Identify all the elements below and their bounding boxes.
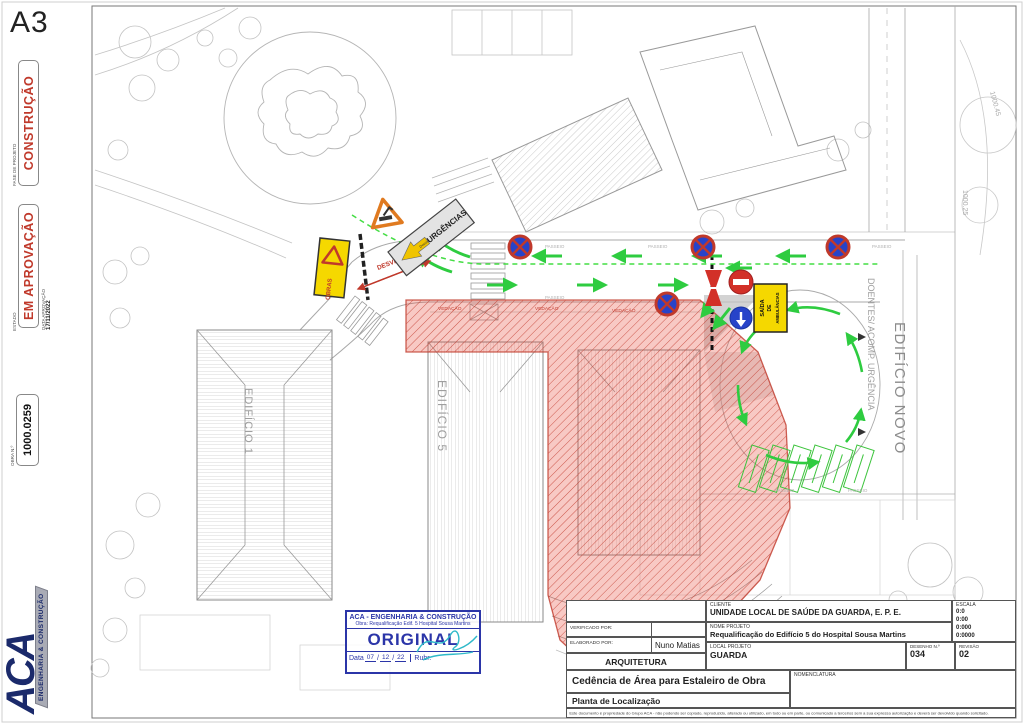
approval-date-block: DATA APROVAÇÃO 17/11/2022: [41, 260, 55, 330]
stamp-year: 22: [395, 654, 406, 662]
route-arrow-icon: [858, 428, 866, 436]
status-value-badge: EM APROVAÇÃO: [18, 204, 39, 328]
tb-verificado: VERIFICADO POR:: [566, 622, 706, 637]
escala-2: 0:00: [956, 616, 1015, 624]
contour-b-label: 1000.25: [961, 190, 968, 215]
local-label: LOCAL PROJETO: [707, 643, 905, 650]
passeio-label: PASSEIO: [545, 295, 565, 300]
passeio-label: PASSEIO: [848, 488, 868, 493]
stamp-date-row: Data 07 / 12 / 22 Rubr.: [347, 652, 479, 664]
stamp-sep2: /: [392, 655, 394, 662]
cliente-label: CLIENTE: [707, 601, 951, 608]
work-number-label: OBRA N.º: [10, 446, 15, 466]
edificio1-label: EDIFÍCIO 1: [242, 388, 255, 455]
drawing-sheet: DESVIO Desvio URGÊNCIAS OBRAS SAÍDA DE A…: [0, 0, 1024, 724]
revisao-value: 02: [956, 649, 1015, 659]
amb-line2: DE: [767, 304, 773, 312]
tb-empty-cell: [566, 600, 706, 622]
stamp-divider: [410, 654, 411, 662]
nomenclatura-label: NOMENCLATURA: [791, 671, 1015, 678]
tb-assunto: Cedência de Área para Estaleiro de Obra: [566, 670, 790, 693]
stamp-rubr-label: Rubr.: [414, 655, 431, 662]
stamp-obra: Obra: Requalificação Edif. 5 Hospital So…: [347, 621, 479, 629]
tb-escala: ESCALA 0:0 0:00 0:000 0:0000: [952, 600, 1016, 642]
vedacao-label: VEDAÇÃO: [535, 305, 559, 312]
stamp-company: ACA - ENGENHARIA & CONSTRUÇÃO: [347, 612, 479, 621]
sheet-format: A3: [10, 6, 49, 40]
tb-disciplina: ARQUITETURA: [566, 653, 706, 670]
amb-line3: AMBULÂNCIAS: [775, 292, 780, 323]
vedacao-label: VEDAÇÃO: [612, 307, 636, 314]
garden-maze: [224, 32, 396, 204]
fence-bar-left: [360, 234, 368, 300]
road-vertical: [869, 8, 905, 232]
status-label: ESTADO: [12, 312, 17, 331]
edificio5-label: EDIFÍCIO 5: [435, 380, 450, 452]
amb-line1: SAÍDA: [758, 299, 766, 316]
aca-logo-band: ENGENHARIA & CONSTRUÇÃO: [35, 586, 48, 709]
tb-local: LOCAL PROJETO GUARDA: [706, 642, 906, 670]
passeio-label: PASSEIO: [775, 488, 795, 493]
route-label: DOENTES/ ACOMP. URGÊNCIA: [866, 278, 876, 410]
mandatory-direction-sign: [730, 307, 752, 329]
ambulance-exit-sign: SAÍDA DE AMBULÂNCIAS: [754, 284, 787, 332]
verificado-label: VERIFICADO POR:: [567, 623, 705, 631]
elaborado-value: Nuno Matias: [655, 641, 700, 650]
no-entry-sign: [729, 270, 753, 294]
contour-a-label: 1000.45: [988, 91, 1001, 117]
stamp-data-label: Data: [349, 655, 364, 662]
passeio-label: PASSEIO: [648, 244, 668, 249]
tb-elaborado: ELABORADO POR: Nuno Matias: [566, 637, 706, 653]
stamp-day: 07: [365, 654, 376, 662]
desenho-value: 034: [907, 649, 954, 659]
route-arrow-icon: [858, 333, 866, 341]
disclaimer-text: Este documento é propriedade do Grupo AC…: [567, 711, 989, 715]
edificio-novo-label: EDIFÍCIO NOVO: [891, 322, 908, 455]
tb-nome-projeto: NOME PROJETO Requalificação do Edifício …: [706, 622, 952, 642]
contours: [960, 40, 1016, 255]
stamp-sep1: /: [377, 655, 379, 662]
phase-label: FASE DE PROJETO: [12, 144, 17, 186]
aca-logo: ACA ENGENHARIA & CONSTRUÇÃO: [4, 582, 50, 714]
building-top-right: [640, 26, 846, 210]
paths-layer: [95, 8, 572, 258]
obras-sign: OBRAS: [314, 238, 350, 302]
barrier-icon: [705, 270, 722, 306]
stamp-month: 12: [380, 654, 391, 662]
passeio-label: PASSEIO: [545, 244, 565, 249]
original-stamp: ACA - ENGENHARIA & CONSTRUÇÃO Obra: Requ…: [345, 610, 481, 674]
tb-disclaimer: Este documento é propriedade do Grupo AC…: [566, 708, 1016, 718]
roadworks-triangle-icon: [368, 197, 402, 228]
tb-titulo: Planta de Localização: [566, 693, 790, 708]
escala-3: 0:000: [956, 624, 1015, 632]
escala-1: 0:0: [956, 608, 1015, 616]
tb-revisao: REVISÃO 02: [955, 642, 1016, 670]
escala-4: 0:0000: [956, 632, 1015, 640]
stamp-original: ORIGINAL: [347, 629, 479, 652]
local-value: GUARDA: [707, 650, 905, 660]
cliente-value: UNIDADE LOCAL DE SAÚDE DA GUARDA, E. P. …: [707, 608, 951, 617]
tb-desenho: DESENHO N.º 034: [906, 642, 955, 670]
work-number-badge: 1000.0259: [16, 394, 39, 466]
passeio-label: PASSEIO: [872, 244, 892, 249]
crosswalk-left: [337, 296, 389, 345]
approval-date-value: 17/11/2022: [46, 260, 52, 330]
aca-logo-tagline: ENGENHARIA & CONSTRUÇÃO: [38, 593, 45, 701]
nome-projeto-value: Requalificação do Edifício 5 do Hospital…: [707, 630, 951, 639]
tb-nomenclatura: NOMENCLATURA: [790, 670, 1016, 708]
nome-projeto-label: NOME PROJETO: [707, 623, 951, 630]
escala-label: ESCALA: [953, 601, 1015, 608]
aca-logo-text: ACA: [4, 582, 38, 714]
tb-cliente: CLIENTE UNIDADE LOCAL DE SAÚDE DA GUARDA…: [706, 600, 952, 622]
building-edificio1: [197, 330, 332, 600]
vedacao-label: VEDAÇÃO: [438, 305, 462, 312]
phase-value-badge: CONSTRUÇÃO: [18, 60, 39, 186]
